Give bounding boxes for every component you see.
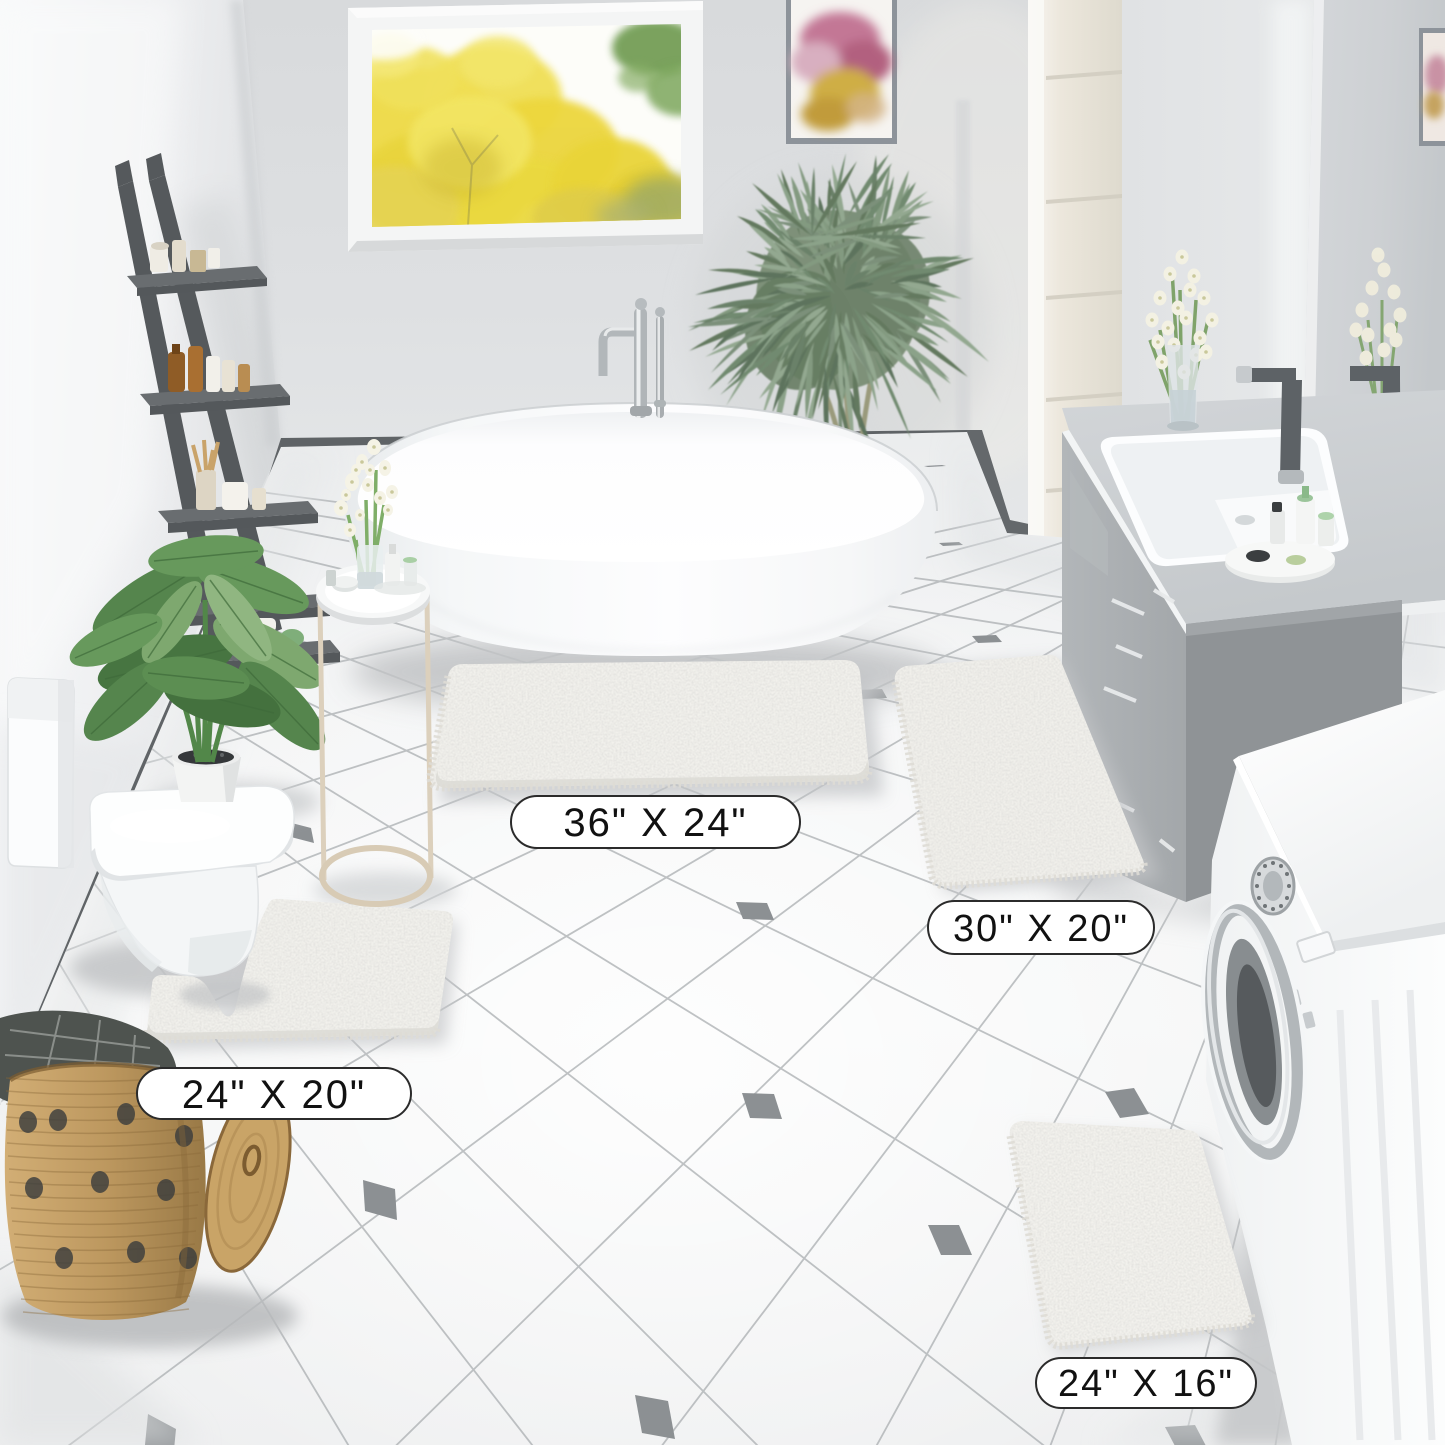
svg-text:36" X 24": 36" X 24" [563, 801, 747, 845]
svg-text:24" X 20": 24" X 20" [182, 1073, 366, 1117]
svg-text:30" X 20": 30" X 20" [953, 908, 1129, 950]
svg-text:24" X 16": 24" X 16" [1058, 1363, 1234, 1405]
